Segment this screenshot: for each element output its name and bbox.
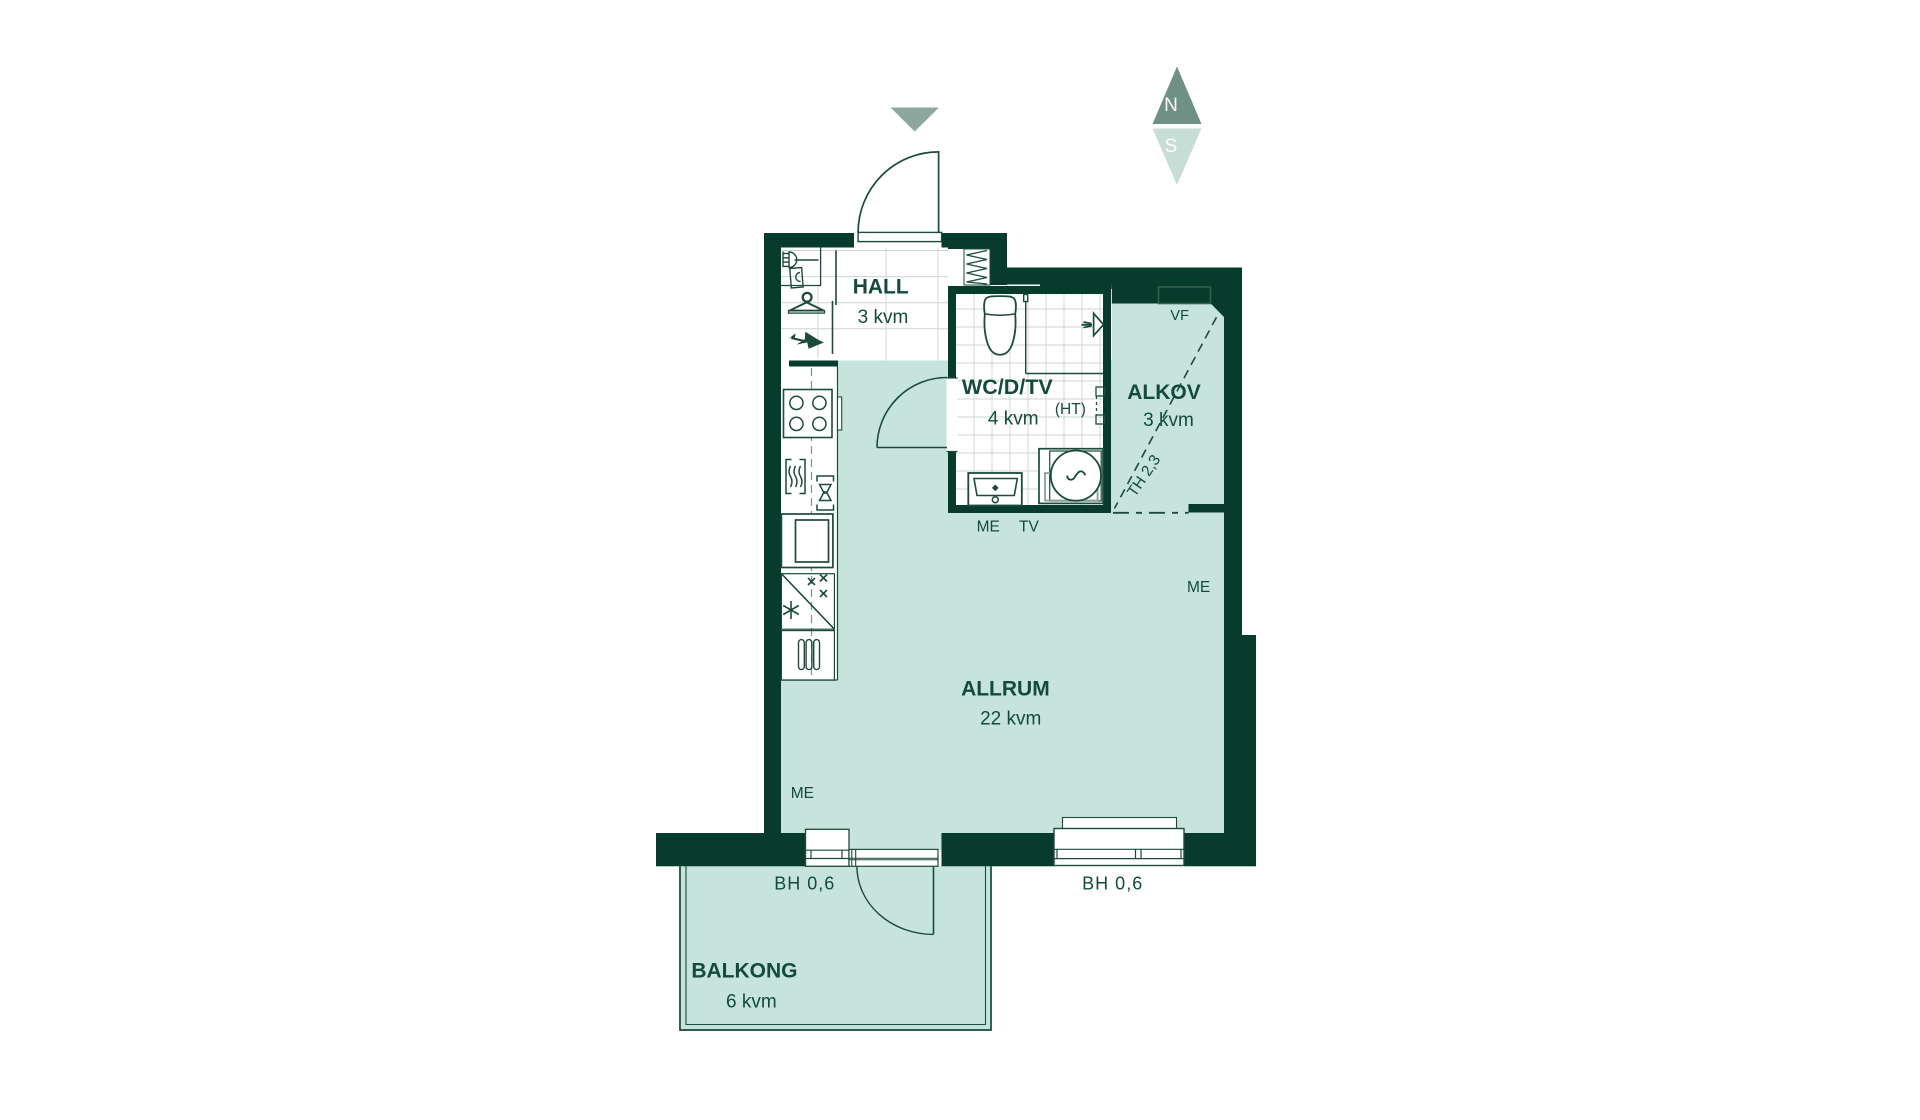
- svg-text:ALLRUM: ALLRUM: [961, 678, 1050, 701]
- svg-text:WC/D/TV: WC/D/TV: [962, 375, 1053, 399]
- svg-text:S: S: [1165, 136, 1178, 157]
- svg-text:N: N: [1164, 95, 1178, 116]
- svg-text:22 kvm: 22 kvm: [980, 709, 1041, 730]
- svg-text:BALKONG: BALKONG: [691, 960, 797, 983]
- svg-text:HALL: HALL: [853, 276, 909, 299]
- svg-text:VF: VF: [1170, 308, 1189, 324]
- svg-text:3 kvm: 3 kvm: [1143, 410, 1194, 431]
- svg-text:ME: ME: [977, 519, 1000, 536]
- svg-text:ME: ME: [791, 785, 814, 802]
- svg-text:ME: ME: [1187, 579, 1210, 596]
- svg-text:BH 0,6: BH 0,6: [1082, 874, 1143, 894]
- svg-text:6 kvm: 6 kvm: [726, 992, 777, 1013]
- svg-text:3 kvm: 3 kvm: [858, 307, 909, 328]
- svg-text:ALKOV: ALKOV: [1127, 381, 1201, 404]
- svg-text:(HT): (HT): [1055, 401, 1086, 418]
- svg-text:BH 0,6: BH 0,6: [774, 874, 835, 894]
- svg-text:4 kvm: 4 kvm: [988, 408, 1039, 429]
- svg-text:TV: TV: [1019, 519, 1039, 536]
